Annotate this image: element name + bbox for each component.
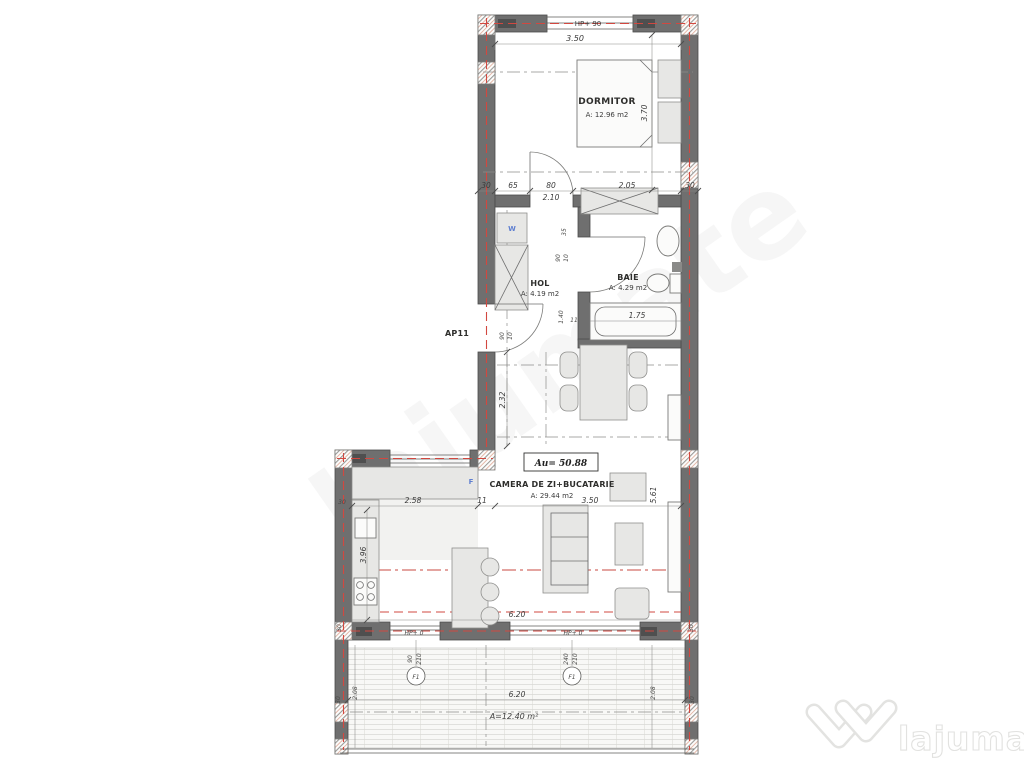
hall-closet-crossed [495, 245, 528, 310]
toilet-tank [670, 274, 681, 293]
cabinet [610, 473, 646, 501]
room-baie-name: BAIE [617, 273, 639, 282]
dim-door-210: 210 [416, 653, 423, 665]
chair [629, 385, 647, 411]
dim-bottom-30r: 30 [688, 624, 695, 632]
dim-terrace-30l: 30 [335, 696, 342, 704]
terrace-area-label: A=12.40 m² [489, 712, 539, 721]
washer-label: W [508, 225, 516, 233]
room-hol-name: HOL [530, 279, 549, 288]
brand-name: lajumate [898, 719, 1024, 758]
dim-hall-90: 90 [555, 254, 562, 262]
dim-kitchen-258: 2.58 [405, 496, 422, 505]
dim-seg80-h: 2.10 [543, 193, 560, 202]
dim-bed-len: 3.70 [640, 104, 649, 121]
column [478, 450, 495, 470]
radiator [668, 395, 681, 440]
room-dormitor-name: DORMITOR [578, 97, 635, 107]
dim-terrace-620: 6.20 [509, 690, 526, 699]
bath-niche [672, 262, 682, 272]
dim-hall-35: 35 [561, 228, 568, 236]
dim-tub: 1.75 [629, 311, 646, 320]
bar-stool [481, 558, 499, 576]
chair [560, 352, 578, 378]
toilet-bowl [647, 274, 669, 292]
wall-bath-partition-b [578, 292, 590, 340]
brand-logo-icon [814, 708, 889, 740]
dim-living-561: 5.61 [649, 487, 658, 504]
total-area-box: Au= 50.88 [524, 453, 598, 471]
floor-plan-page: lajumate [0, 0, 1024, 768]
stove [354, 578, 377, 605]
floor-plan-svg: lajumate [0, 0, 1024, 768]
dim-living-350: 3.50 [582, 496, 599, 505]
dim-bottom-30l: 30 [336, 624, 343, 632]
wall-bedroom-c [658, 195, 681, 207]
dim-door-210b: 210 [572, 653, 579, 665]
total-area-label: Au= 50.88 [534, 459, 588, 469]
hp-bottom-left: HP+ 0 [405, 630, 424, 637]
dim-top-width: 3.50 [566, 34, 584, 43]
room-dormitor-area: A: 12.96 m2 [586, 111, 629, 119]
terrace-edge [340, 749, 694, 753]
tv-console [668, 502, 681, 592]
dim-wall30-tr: 30 [685, 181, 695, 190]
brand-watermark: lajumate.ro [814, 708, 1024, 758]
chair [560, 385, 578, 411]
room-baie-area: A: 4.29 m2 [609, 284, 647, 292]
f1-left-label: F1 [412, 674, 419, 681]
room-hol-area: A: 4.19 m2 [521, 290, 559, 298]
dim-door-240: 240 [563, 653, 570, 665]
window-f-label: F [469, 478, 474, 486]
column [685, 703, 698, 722]
dim-bottom-620: 6.20 [509, 610, 526, 619]
kitchen-counter-top [352, 467, 478, 499]
dim-kitchen-30: 30 [338, 499, 346, 506]
top-window-label: HP+ 90 [575, 20, 601, 28]
apartment-label: AP11 [445, 329, 469, 338]
dim-terrace-208r: 2.08 [650, 686, 657, 700]
closet-crossed [581, 188, 658, 214]
dim-seg80: 80 [546, 181, 556, 190]
dim-terrace-208l: 2.08 [352, 686, 359, 700]
dim-hall-10: 10 [563, 254, 570, 262]
sofa [543, 505, 588, 593]
wardrobe [658, 60, 681, 98]
armchair [615, 588, 649, 619]
sink [657, 226, 679, 256]
dim-kitchen-11: 11 [477, 496, 487, 505]
kitchen-sink [355, 518, 376, 538]
column [335, 703, 348, 722]
room-living-name: CAMERA DE ZI+BUCATARIE [489, 480, 614, 489]
room-living-area: A: 29.44 m2 [531, 492, 574, 500]
svg-text:lajumate.ro: lajumate.ro [898, 719, 1024, 758]
dim-entry-90: 90 [499, 332, 506, 340]
dim-seg205: 2.05 [619, 181, 636, 190]
dim-bath-140: 1.40 [558, 310, 565, 324]
bathtub [590, 303, 681, 340]
f1-right-label: F1 [568, 674, 575, 681]
dim-bath-11: 11 [570, 317, 578, 324]
door-symbol-f1-right: F1 [563, 667, 581, 685]
dim-door-90: 90 [407, 655, 414, 663]
dim-wall30-tl: 30 [481, 181, 491, 190]
bar-stool [481, 583, 499, 601]
bar-stool [481, 607, 499, 625]
dim-terrace-30r: 30 [689, 696, 696, 704]
dim-entry-10: 10 [507, 332, 514, 340]
column [335, 739, 348, 754]
hp-bottom-right: HP+ 0 [564, 630, 583, 637]
wall-bedroom-a [495, 195, 530, 207]
dining-table [580, 345, 627, 420]
wardrobe [658, 102, 681, 143]
column [685, 739, 698, 754]
dim-seg65: 65 [508, 181, 518, 190]
door-symbol-f1-left: F1 [407, 667, 425, 685]
dim-dining-232: 2.32 [498, 391, 507, 408]
chair [629, 352, 647, 378]
coffee-table [615, 523, 643, 565]
dim-kitchen-396: 3.96 [359, 546, 368, 563]
